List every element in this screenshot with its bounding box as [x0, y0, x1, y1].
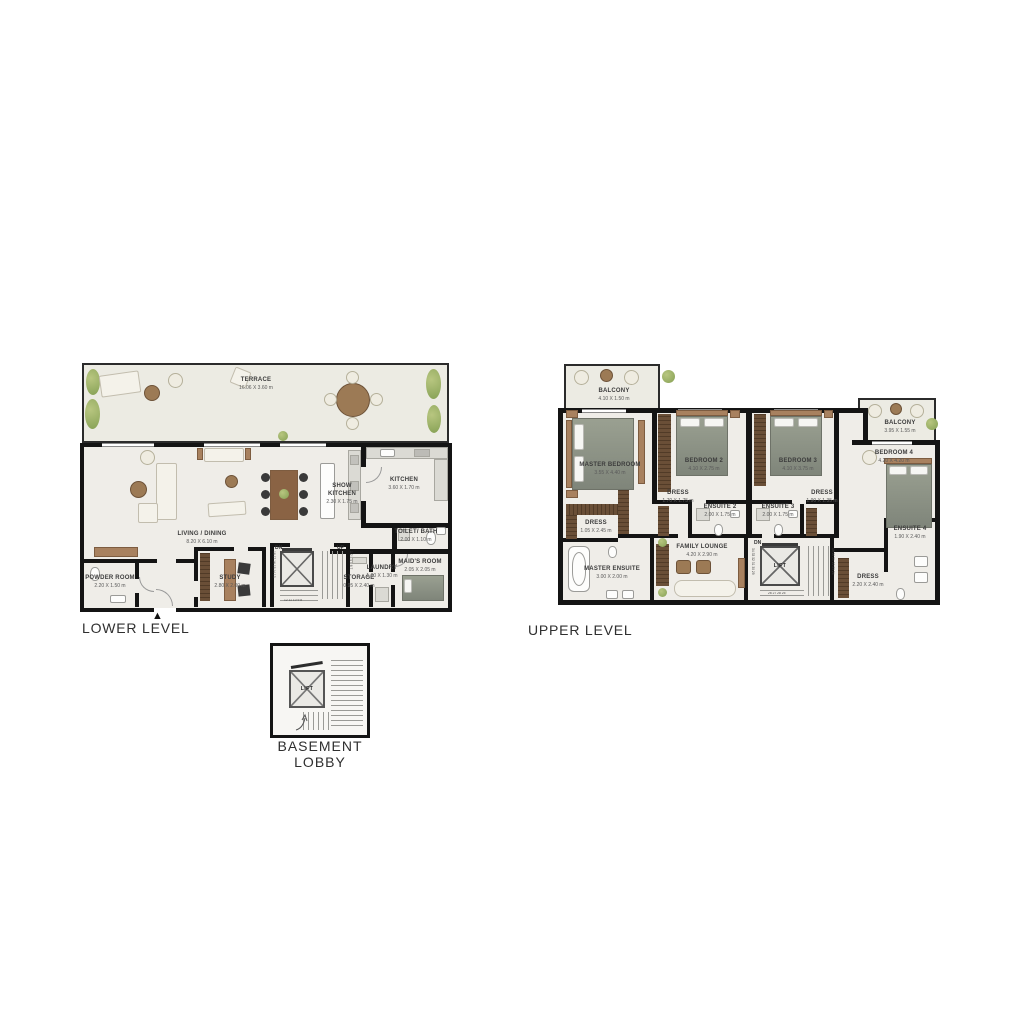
wall: [935, 440, 940, 605]
plant-icon: [426, 369, 441, 399]
desk-chair: [237, 562, 250, 575]
room-name: LIVING / DINING: [177, 531, 226, 539]
balcony-chair: [574, 370, 589, 385]
basin: [914, 572, 928, 583]
plant-icon: [85, 399, 100, 429]
door-arc: [366, 467, 382, 483]
wall: [262, 547, 266, 607]
room-name: STUDY: [214, 575, 245, 583]
lift-shaft: [280, 551, 314, 587]
wall: [558, 600, 940, 605]
stair-treads: [331, 656, 363, 730]
room-dims: 4.20 X 2.90 m: [676, 552, 727, 559]
wall: [834, 408, 839, 538]
room-name: BEDROOM 3: [779, 458, 817, 466]
stairs-dn-label: DN: [754, 540, 761, 546]
side-table: [245, 448, 251, 460]
room-label-maids: MAID'S ROOM 2.05 X 2.05 m: [398, 559, 441, 573]
wall: [863, 408, 868, 444]
room-name: DRESS: [852, 574, 883, 582]
room-label-living: LIVING / DINING 8.20 X 6.10 m: [177, 531, 226, 545]
room-label-show-kitchen: SHOW KITCHEN 2.30 X 1.75 m: [325, 483, 359, 505]
pouf: [696, 560, 711, 574]
room-dims: 4.10 X 3.75 m: [779, 466, 817, 473]
stair-numbers-bottom: 26 27 28 25: [768, 592, 785, 595]
balcony-chair: [624, 370, 639, 385]
basement-lobby-plan: LIFT: [270, 643, 370, 738]
balcony-chair: [910, 404, 924, 418]
toilet: [774, 524, 783, 536]
washing-machine: [375, 587, 389, 602]
balcony-table: [890, 403, 902, 415]
wall: [84, 559, 135, 563]
wall: [800, 504, 804, 538]
side-table: [197, 448, 203, 460]
room-dims: 1.05 X 2.45 m: [580, 528, 611, 535]
armchair: [140, 450, 155, 465]
room-dims: 3.55 X 4.40 m: [579, 470, 640, 477]
window: [280, 443, 326, 447]
dining-chair: [299, 507, 308, 516]
wall: [618, 534, 678, 538]
room-name: BEDROOM 2: [685, 458, 723, 466]
lower-main-floor: LIVING / DINING 8.20 X 6.10 m SHOW KITCH…: [80, 443, 452, 612]
wall: [558, 408, 563, 605]
toilet: [608, 546, 617, 558]
room-dims: 2.20 X 1.50 m: [85, 583, 135, 590]
pillow: [680, 418, 700, 427]
room-dims: 4.20 X 4.20 m: [875, 458, 913, 465]
room-label-powder: POWDER ROOM 2.20 X 1.50 m: [85, 575, 135, 589]
basin: [606, 590, 618, 599]
room-dims: 0.95 X 2.40 m: [343, 583, 374, 590]
kitchen-counter: [366, 447, 448, 459]
stair-treads: [804, 546, 830, 596]
stair-numbers-left: 34 33 32 31 30 29: [751, 548, 754, 575]
outdoor-chair: [370, 393, 383, 406]
room-label-master: MASTER BEDROOM 3.55 X 4.40 m: [579, 462, 640, 476]
room-dims: 16.06 X 3.60 m: [239, 385, 273, 392]
stairs-dn-label: DN: [275, 545, 282, 551]
wall: [774, 534, 836, 538]
wardrobe: [566, 515, 577, 539]
room-label-dress-master: DRESS 1.05 X 2.45 m: [580, 520, 611, 534]
room-dims: 1.90 X 1.35 m: [806, 498, 837, 505]
lift-label: LIFT: [762, 563, 798, 569]
sofa-corner: [138, 503, 158, 523]
room-label-master-ensuite: MASTER ENSUITE 3.00 X 2.00 m: [584, 566, 640, 580]
room-name: BALCONY: [598, 388, 629, 396]
wall: [746, 408, 752, 538]
pillow: [798, 418, 818, 427]
stair-treads: [280, 589, 318, 605]
room-name: MAID'S ROOM: [398, 559, 441, 567]
room-name: TERRACE: [239, 377, 273, 385]
room-dims: 3.60 X 1.70 m: [388, 485, 419, 492]
plant-icon: [662, 370, 675, 383]
plant-icon: [278, 431, 288, 441]
wardrobe: [658, 414, 671, 492]
stair-numbers-bottom: 12 11 10 9 8: [284, 599, 302, 602]
room-name: DRESS: [806, 490, 837, 498]
study-wardrobe: [200, 553, 210, 601]
room-name: ENSUITE 2: [704, 504, 737, 512]
upper-level-plan: BALCONY 4.10 X 1.50 m BALCONY 3.95 X 1.5…: [558, 362, 940, 608]
lounge-sofa: [674, 580, 736, 597]
room-name: FAMILY LOUNGE: [676, 544, 727, 552]
room-name: BALCONY: [884, 420, 915, 428]
outdoor-chair: [346, 371, 359, 384]
pillow: [910, 466, 928, 475]
wardrobe: [806, 508, 817, 536]
room-label-ensuite4: ENSUITE 4 1.90 X 2.40 m: [894, 526, 927, 540]
room-label-terrace: TERRACE 16.06 X 3.60 m: [239, 377, 273, 391]
plant-icon: [658, 588, 667, 597]
wall: [194, 597, 198, 607]
outdoor-chair: [324, 393, 337, 406]
room-name: BEDROOM 4: [875, 450, 913, 458]
basin: [914, 556, 928, 567]
wardrobe: [618, 490, 629, 534]
wall: [884, 522, 888, 572]
pillow: [889, 466, 907, 475]
room-name: DRESS: [580, 520, 611, 528]
room-label-bedroom3: BEDROOM 3 4.10 X 3.75 m: [779, 458, 817, 472]
wall: [135, 593, 139, 607]
room-dims: 1.70 X 1.75 m: [662, 498, 693, 505]
basin: [622, 590, 634, 599]
door-arc: [156, 589, 173, 606]
console: [94, 547, 138, 557]
room-label-balcony-right: BALCONY 3.95 X 1.55 m: [884, 420, 915, 434]
wall: [652, 408, 657, 504]
floorplan-sheet: { "plans": { "lower": { "title": "LOWER …: [0, 0, 1024, 1024]
room-dims: 2.00 X 1.10 m: [394, 537, 437, 544]
wall: [688, 504, 692, 538]
plant-icon: [427, 405, 441, 433]
pillow: [404, 579, 412, 593]
room-dims: 4.10 X 1.50 m: [598, 396, 629, 403]
room-name: SHOW KITCHEN: [325, 483, 359, 499]
door-arc: [139, 577, 154, 592]
pillow: [574, 424, 584, 450]
room-dims: 3.95 X 1.55 m: [884, 428, 915, 435]
pillow: [774, 418, 794, 427]
window: [204, 443, 260, 447]
room-dims: 2.30 X 1.75 m: [325, 499, 359, 506]
lift-door: [762, 543, 798, 546]
room-label-toilet-bath: TOILET/ BATH 2.00 X 1.10 m: [394, 529, 437, 543]
room-label-bedroom4: BEDROOM 4 4.20 X 4.20 m: [875, 450, 913, 464]
toilet: [896, 588, 905, 600]
balcony-right: BALCONY 3.95 X 1.55 m: [858, 398, 936, 444]
armchair: [225, 475, 238, 488]
room-dims: 2.00 X 1.75 m: [704, 512, 737, 519]
room-dims: 2.80 X 2.00 m: [214, 583, 245, 590]
room-dims: 8.20 X 6.10 m: [177, 539, 226, 546]
wardrobe: [566, 504, 618, 515]
fridge-column: [434, 459, 448, 501]
stair-treads: [318, 551, 346, 599]
window: [582, 409, 626, 413]
stairs-up-label: UP: [337, 545, 344, 551]
lift-door: [291, 661, 323, 669]
dining-chair: [261, 490, 270, 499]
nightstand: [824, 410, 833, 418]
dining-chair: [261, 473, 270, 482]
sink: [380, 449, 395, 457]
balcony-table: [600, 369, 613, 382]
wall: [391, 585, 395, 607]
storage-shelf: [352, 557, 367, 564]
room-label-family: FAMILY LOUNGE 4.20 X 2.90 m: [676, 544, 727, 558]
room-label-ensuite3: ENSUITE 3 2.00 X 1.75 m: [762, 504, 795, 518]
terrace-area: TERRACE 16.06 X 3.60 m: [82, 363, 449, 443]
outdoor-chair: [168, 373, 183, 388]
window: [872, 441, 912, 445]
lift-x-icon: [282, 553, 312, 585]
dining-chair: [299, 473, 308, 482]
wall: [692, 534, 762, 538]
lift-door: [282, 548, 312, 551]
room-dims: 3.00 X 2.00 m: [584, 574, 640, 581]
toilet: [714, 524, 723, 536]
room-name: ENSUITE 4: [894, 526, 927, 534]
plant-icon: [279, 489, 289, 499]
basin: [110, 595, 126, 603]
lift-shaft: LIFT: [760, 546, 800, 586]
plant-icon: [86, 369, 100, 395]
dining-chair: [299, 490, 308, 499]
hob: [414, 449, 430, 457]
wall: [194, 547, 234, 551]
upper-level-title: UPPER LEVEL: [528, 622, 633, 638]
room-dims: 1.90 X 2.40 m: [894, 534, 927, 541]
wall: [830, 548, 888, 552]
room-label-balcony-left: BALCONY 4.10 X 1.50 m: [598, 388, 629, 402]
wall: [361, 523, 448, 528]
sofa-sectional: [156, 463, 177, 520]
lower-level-plan: TERRACE 16.06 X 3.60 m: [80, 363, 452, 612]
room-dims: 2.20 X 2.40 m: [852, 582, 883, 589]
room-label-kitchen: KITCHEN 3.60 X 1.70 m: [388, 477, 419, 491]
room-label-study: STUDY 2.80 X 2.00 m: [214, 575, 245, 589]
balcony-left: BALCONY 4.10 X 1.50 m: [564, 364, 660, 412]
stair-numbers-right: 19 20 21 22 23 24: [831, 548, 834, 575]
basement-lobby-title: BASEMENT LOBBY: [250, 738, 390, 770]
lower-level-title: LOWER LEVEL: [82, 620, 190, 636]
outdoor-chair: [346, 417, 359, 430]
room-dims: 1.00 X 1.30 m: [366, 573, 397, 580]
room-label-laundry: LAUNDRY 1.00 X 1.30 m: [366, 565, 397, 579]
wall: [139, 559, 157, 563]
settee: [204, 448, 244, 462]
side-table: [738, 558, 745, 588]
room-dims: 4.10 X 2.75 m: [685, 466, 723, 473]
room-name: MASTER ENSUITE: [584, 566, 640, 574]
room-label-dress3: DRESS 1.90 X 1.35 m: [806, 490, 837, 504]
room-name: MASTER BEDROOM: [579, 462, 640, 470]
room-label-bedroom2: BEDROOM 2 4.10 X 2.75 m: [685, 458, 723, 472]
plant-icon: [926, 418, 938, 430]
wardrobe: [838, 558, 849, 598]
outdoor-dining-table: [336, 383, 370, 417]
outdoor-sofa: [99, 370, 142, 397]
nightstand: [730, 410, 740, 418]
room-label-dress2: DRESS 1.70 X 1.75 m: [662, 490, 693, 504]
media-console: [656, 544, 669, 586]
room-label-ensuite2: ENSUITE 2 2.00 X 1.75 m: [704, 504, 737, 518]
wall: [194, 547, 198, 581]
window: [102, 443, 154, 447]
pouf: [676, 560, 691, 574]
stair-direction-arrow: [293, 708, 319, 734]
plant-icon: [658, 538, 667, 547]
room-dims: 2.00 X 1.75 m: [762, 512, 795, 519]
room-name: TOILET/ BATH: [394, 529, 437, 537]
lift-shaft: LIFT: [289, 670, 325, 708]
room-name: POWDER ROOM: [85, 575, 135, 583]
stair-numbers-left: 18 17 16 15 14 13: [272, 551, 275, 578]
appliance: [350, 455, 359, 465]
pillow: [704, 418, 724, 427]
outdoor-table: [144, 385, 160, 401]
lift-label: LIFT: [291, 686, 323, 692]
balcony-chair: [868, 404, 882, 418]
room-dims: 2.05 X 2.05 m: [398, 567, 441, 574]
wall: [176, 559, 194, 563]
coffee-table: [130, 481, 147, 498]
nightstand: [566, 490, 578, 498]
room-name: ENSUITE 3: [762, 504, 795, 512]
wall: [650, 538, 654, 602]
wardrobe: [658, 506, 669, 536]
nightstand: [566, 410, 578, 418]
wardrobe: [754, 414, 766, 486]
room-name: DRESS: [662, 490, 693, 498]
room-name: LAUNDRY: [366, 565, 397, 573]
room-name: KITCHEN: [388, 477, 419, 485]
room-label-dress4: DRESS 2.20 X 2.40 m: [852, 574, 883, 588]
dining-chair: [261, 507, 270, 516]
settee: [208, 501, 247, 518]
